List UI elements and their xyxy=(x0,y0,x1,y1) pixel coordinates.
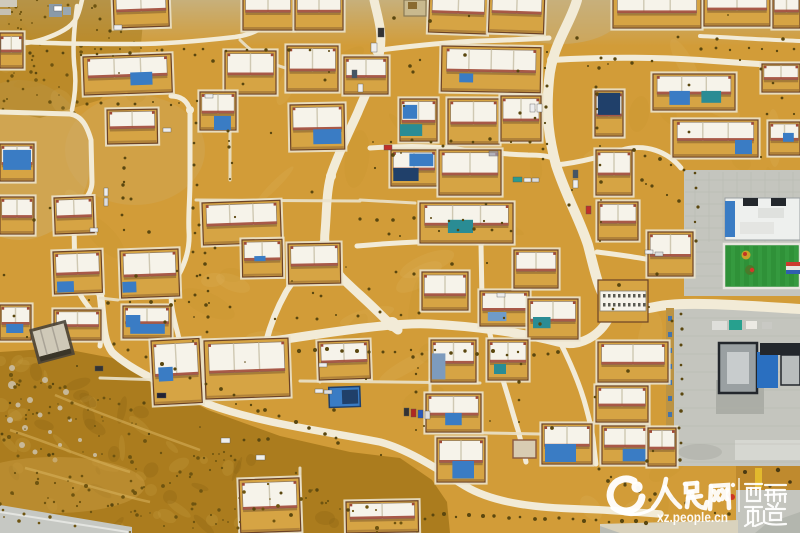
svg-text:xz.people.cn: xz.people.cn xyxy=(657,509,728,525)
